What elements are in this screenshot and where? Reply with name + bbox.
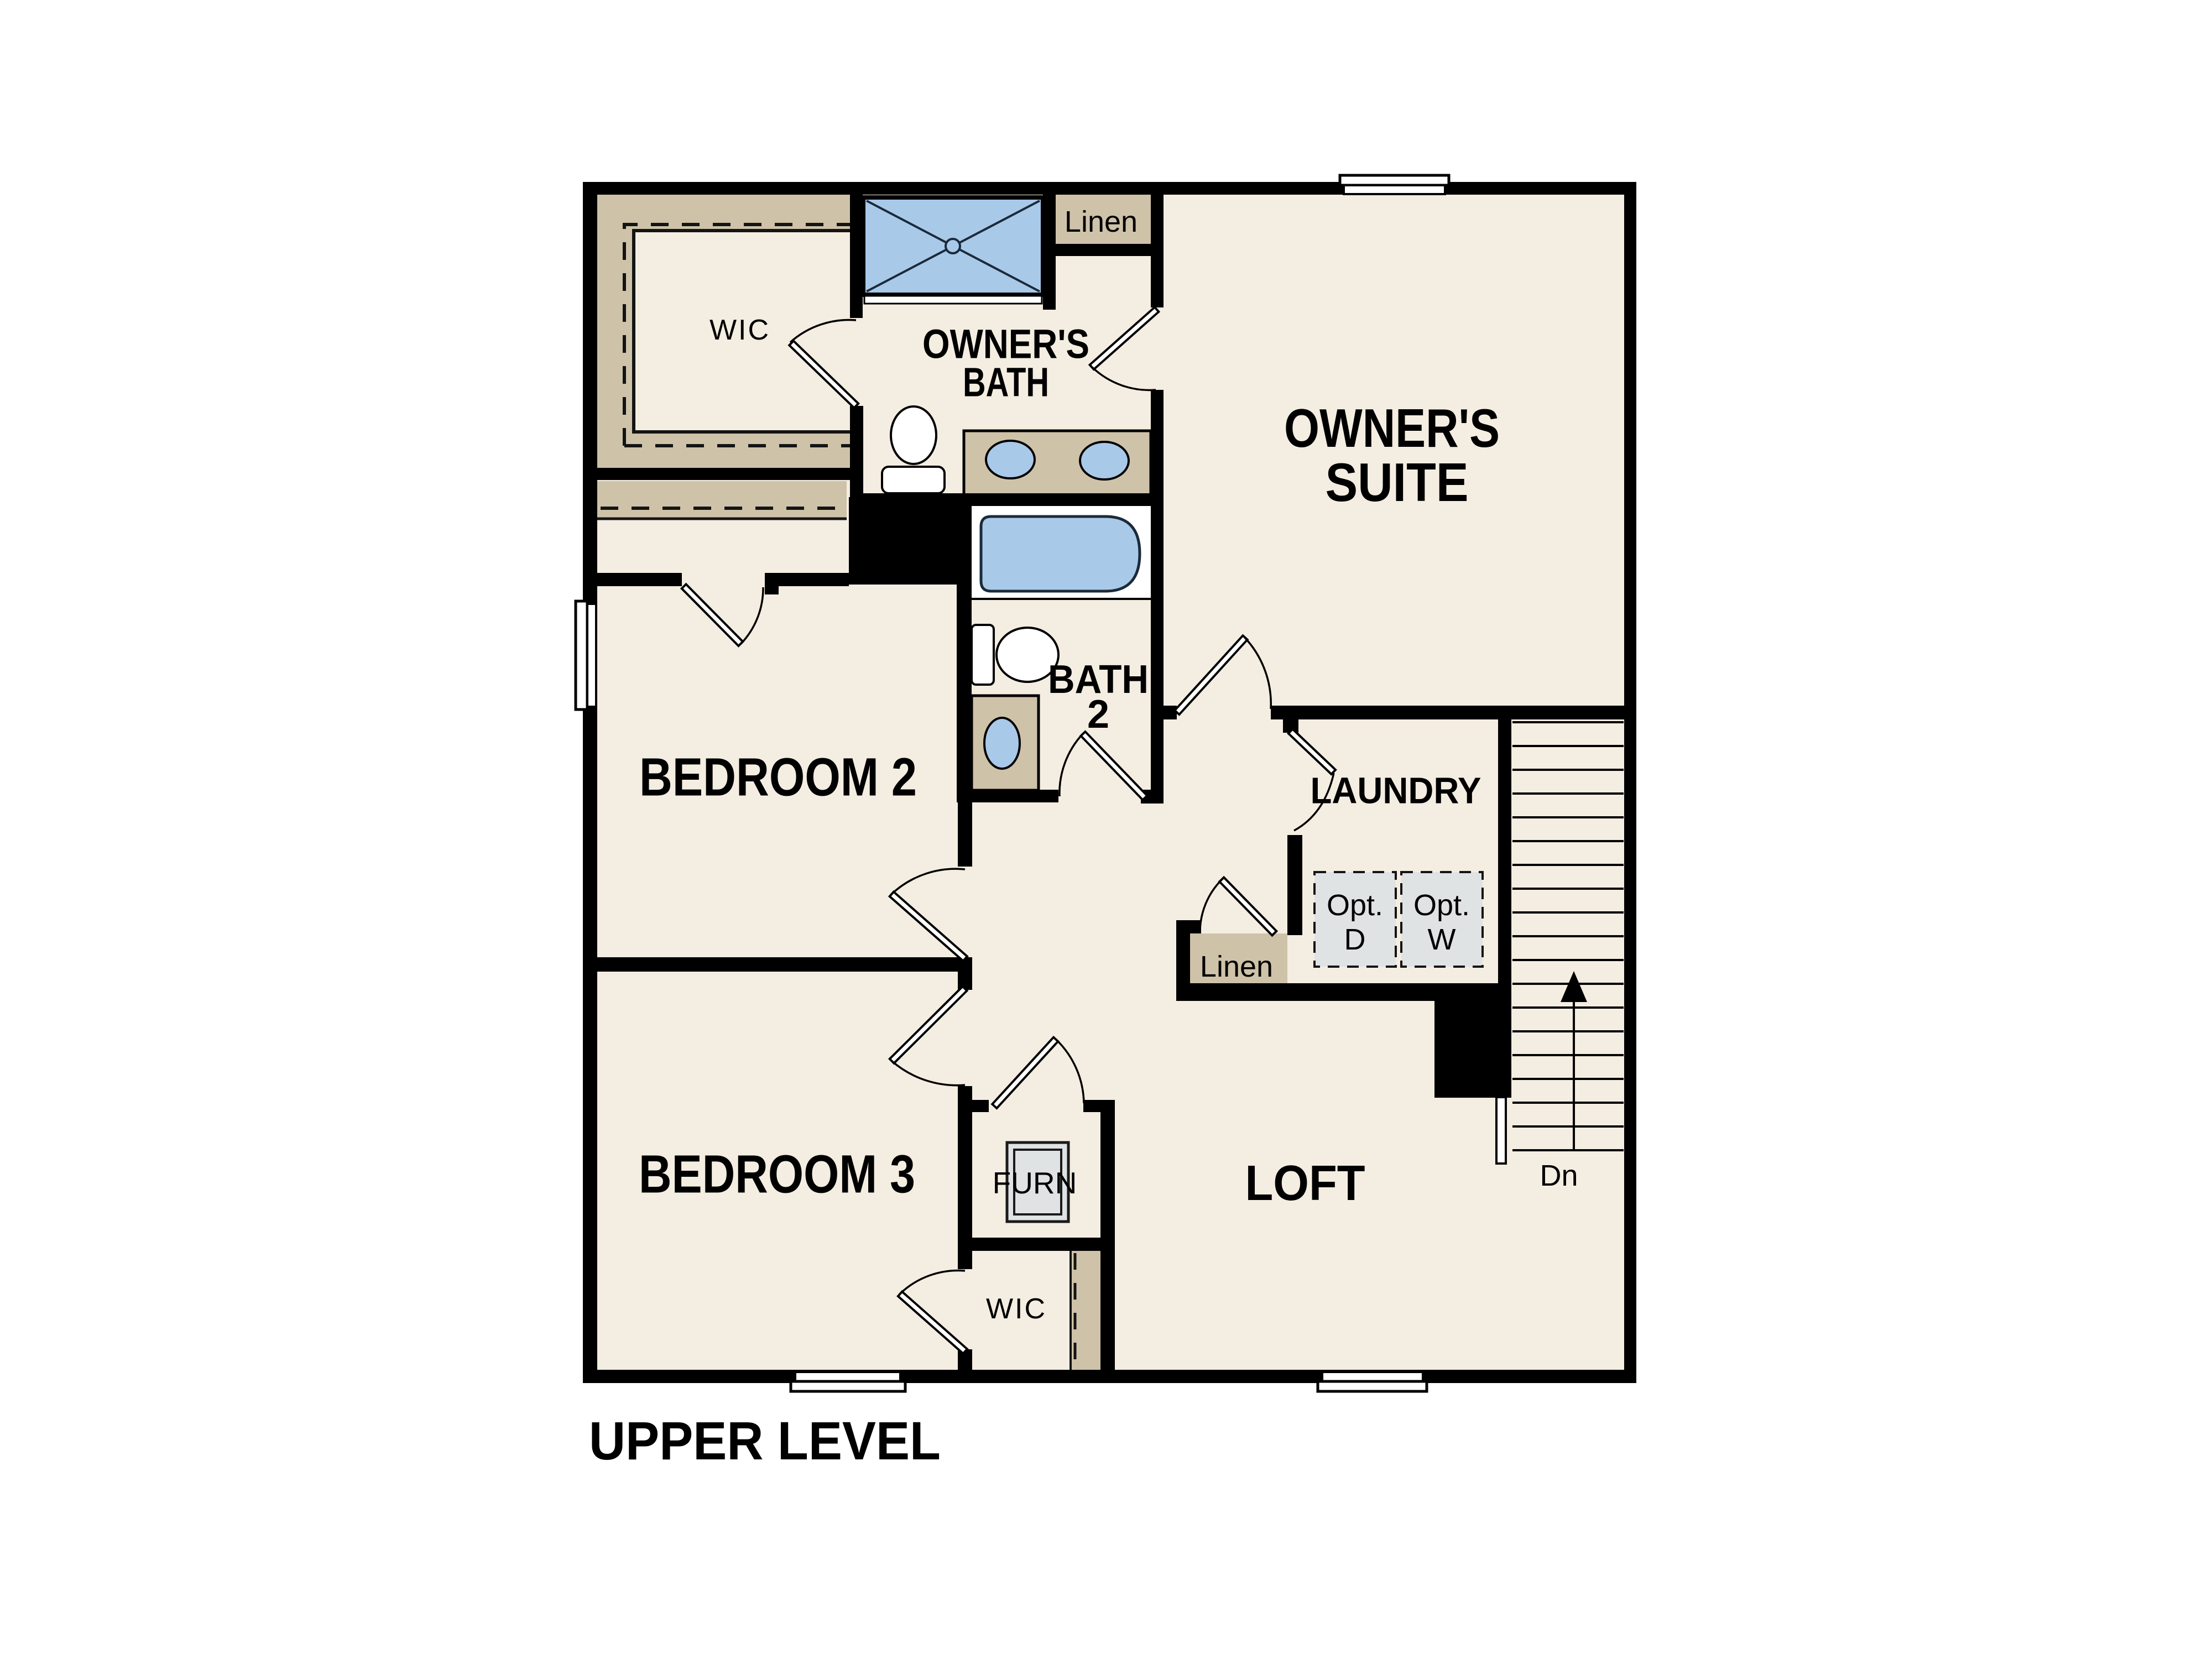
svg-text:FURN: FURN [993,1166,1077,1200]
svg-text:OWNER'S: OWNER'S [1284,398,1500,458]
svg-text:Opt.: Opt. [1413,889,1470,922]
svg-text:BATH: BATH [963,359,1049,405]
svg-text:BEDROOM 3: BEDROOM 3 [639,1144,915,1204]
svg-text:LOFT: LOFT [1245,1156,1365,1211]
svg-text:Linen: Linen [1200,950,1273,983]
svg-text:SUITE: SUITE [1326,452,1469,513]
svg-text:LAUNDRY: LAUNDRY [1311,770,1481,812]
svg-text:UPPER LEVEL: UPPER LEVEL [589,1411,941,1471]
svg-text:D: D [1344,923,1366,956]
svg-text:Opt.: Opt. [1327,889,1383,922]
svg-text:WIC: WIC [986,1293,1047,1325]
svg-text:BEDROOM 2: BEDROOM 2 [639,747,917,807]
svg-text:2: 2 [1087,692,1109,737]
svg-text:W: W [1428,923,1456,956]
svg-text:Linen: Linen [1065,205,1138,238]
svg-text:WIC: WIC [709,314,770,346]
svg-text:Dn: Dn [1540,1159,1578,1192]
